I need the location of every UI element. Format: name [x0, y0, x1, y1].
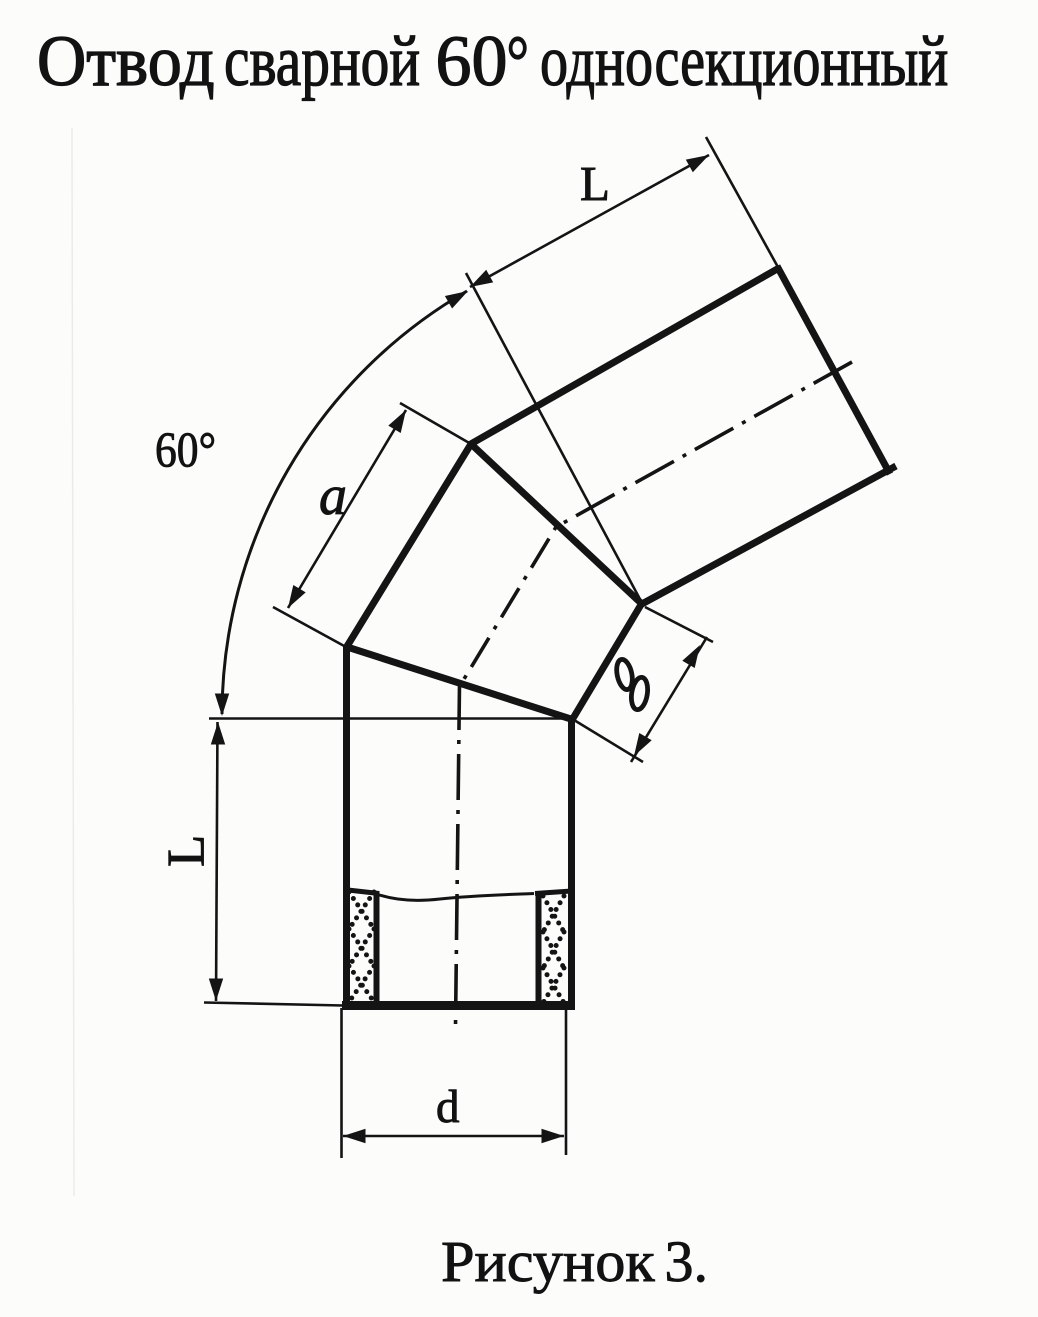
svg-text:a: a — [319, 465, 347, 527]
svg-text:L: L — [158, 835, 216, 867]
svg-text:сварной: сварной — [224, 22, 420, 102]
svg-text:3.: 3. — [665, 1229, 709, 1294]
svg-text:60°: 60° — [155, 421, 216, 477]
svg-text:L: L — [580, 156, 610, 211]
svg-text:d: d — [436, 1081, 460, 1133]
svg-text:°: ° — [507, 20, 529, 100]
svg-text:Отвод: Отвод — [37, 22, 215, 101]
svg-text:60: 60 — [436, 21, 508, 101]
svg-text:односекционный: односекционный — [540, 20, 948, 100]
svg-text:Рисунок: Рисунок — [441, 1229, 655, 1294]
